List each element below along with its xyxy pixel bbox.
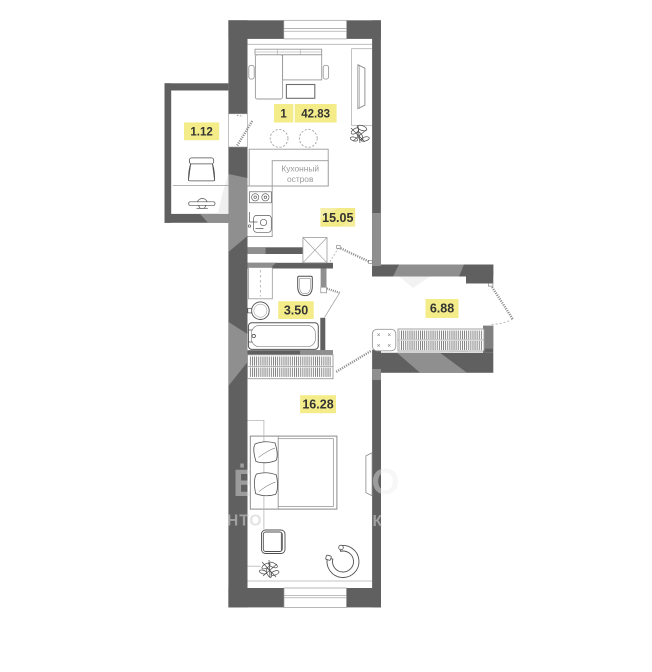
- svg-text:К: К: [373, 513, 383, 530]
- svg-text:16.28: 16.28: [302, 398, 333, 412]
- svg-text:42.83: 42.83: [301, 109, 330, 121]
- svg-text:остров: остров: [287, 174, 314, 184]
- svg-text:Кухонный: Кухонный: [281, 164, 319, 174]
- svg-text:3.50: 3.50: [284, 304, 308, 318]
- svg-text:1.12: 1.12: [190, 127, 212, 139]
- svg-text:6.88: 6.88: [430, 302, 454, 316]
- svg-text:15.05: 15.05: [322, 211, 353, 225]
- svg-text:1: 1: [280, 109, 287, 121]
